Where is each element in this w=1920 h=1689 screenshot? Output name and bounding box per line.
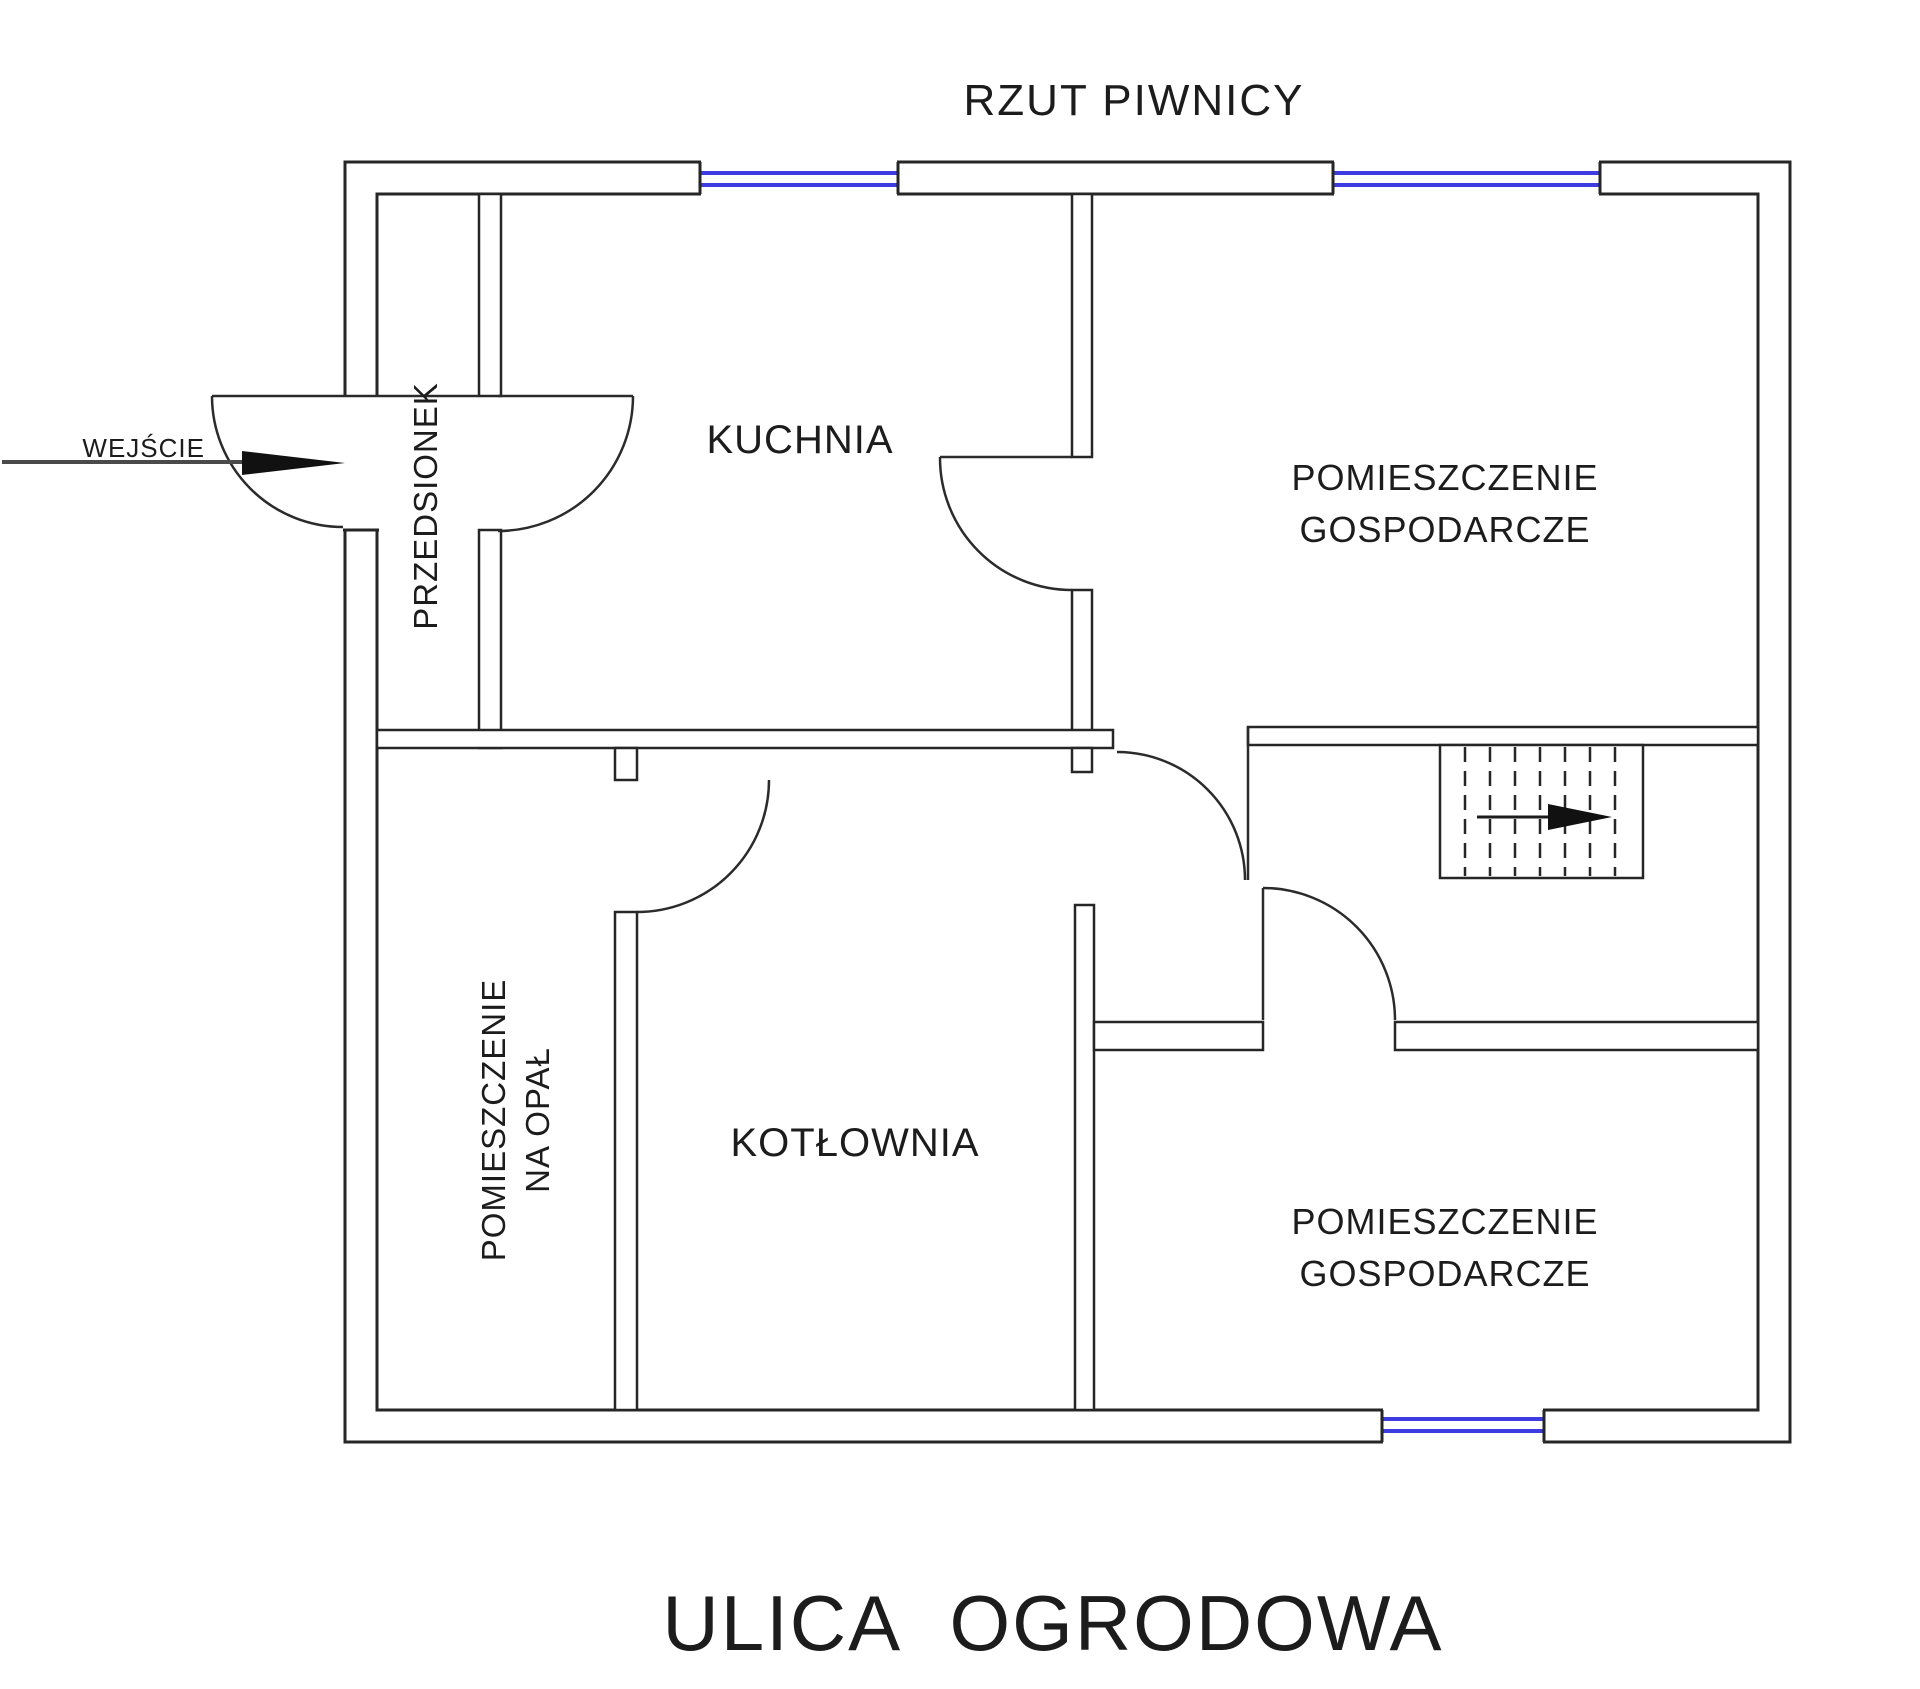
wall-center-upper [1072,194,1092,457]
room-label-gospodarcze-bottom-line2: GOSPODARCZE [1299,1253,1590,1294]
room-label-na-opal-line2: NA OPAŁ [519,1047,556,1193]
floor-plan-canvas: RZUT PIWNICY KUCHNIA POMIESZCZENIE GOSPO… [0,0,1920,1689]
room-label-gospodarcze-top-line1: POMIESZCZENIE [1291,457,1598,498]
window-opening-top-left [701,160,897,197]
wall-middle-right [1248,727,1758,745]
wall-divider-na-opal-kotlownia [615,912,637,1410]
room-label-na-opal-line1: POMIESZCZENIE [475,979,512,1262]
entrance-opening [342,397,380,529]
room-label-gospodarcze-top-line2: GOSPODARCZE [1299,509,1590,550]
wall-bottom-room-left [1094,1022,1263,1050]
wall-bottom-room-right [1395,1022,1758,1050]
stairs-outline [1440,745,1643,878]
entrance-label: WEJŚCIE [82,433,205,463]
window-opening-bottom [1383,1408,1543,1445]
wall-center-mid [1072,590,1092,748]
wall-przedsionek-lower [479,530,501,748]
wall-center-stub [1072,748,1092,772]
window-opening-top-right [1334,160,1599,197]
wall-middle-left [377,730,1113,748]
room-label-kotlownia: KOTŁOWNIA [730,1121,979,1165]
room-label-gospodarcze-bottom-line1: POMIESZCZENIE [1291,1201,1598,1242]
wall-jamb-na-opal [615,748,637,780]
wall-przedsionek-upper [479,194,501,396]
room-label-przedsionek: PRZEDSIONEK [407,382,444,630]
basement-floor-plan: RZUT PIWNICY KUCHNIA POMIESZCZENIE GOSPO… [0,0,1920,1689]
stairs-symbol [1440,745,1643,878]
plan-title: RZUT PIWNICY [964,76,1305,125]
wall-center-lower [1075,905,1094,1410]
room-label-kuchnia: KUCHNIA [706,418,893,462]
street-label: ULICA OGRODOWA [662,1579,1443,1667]
